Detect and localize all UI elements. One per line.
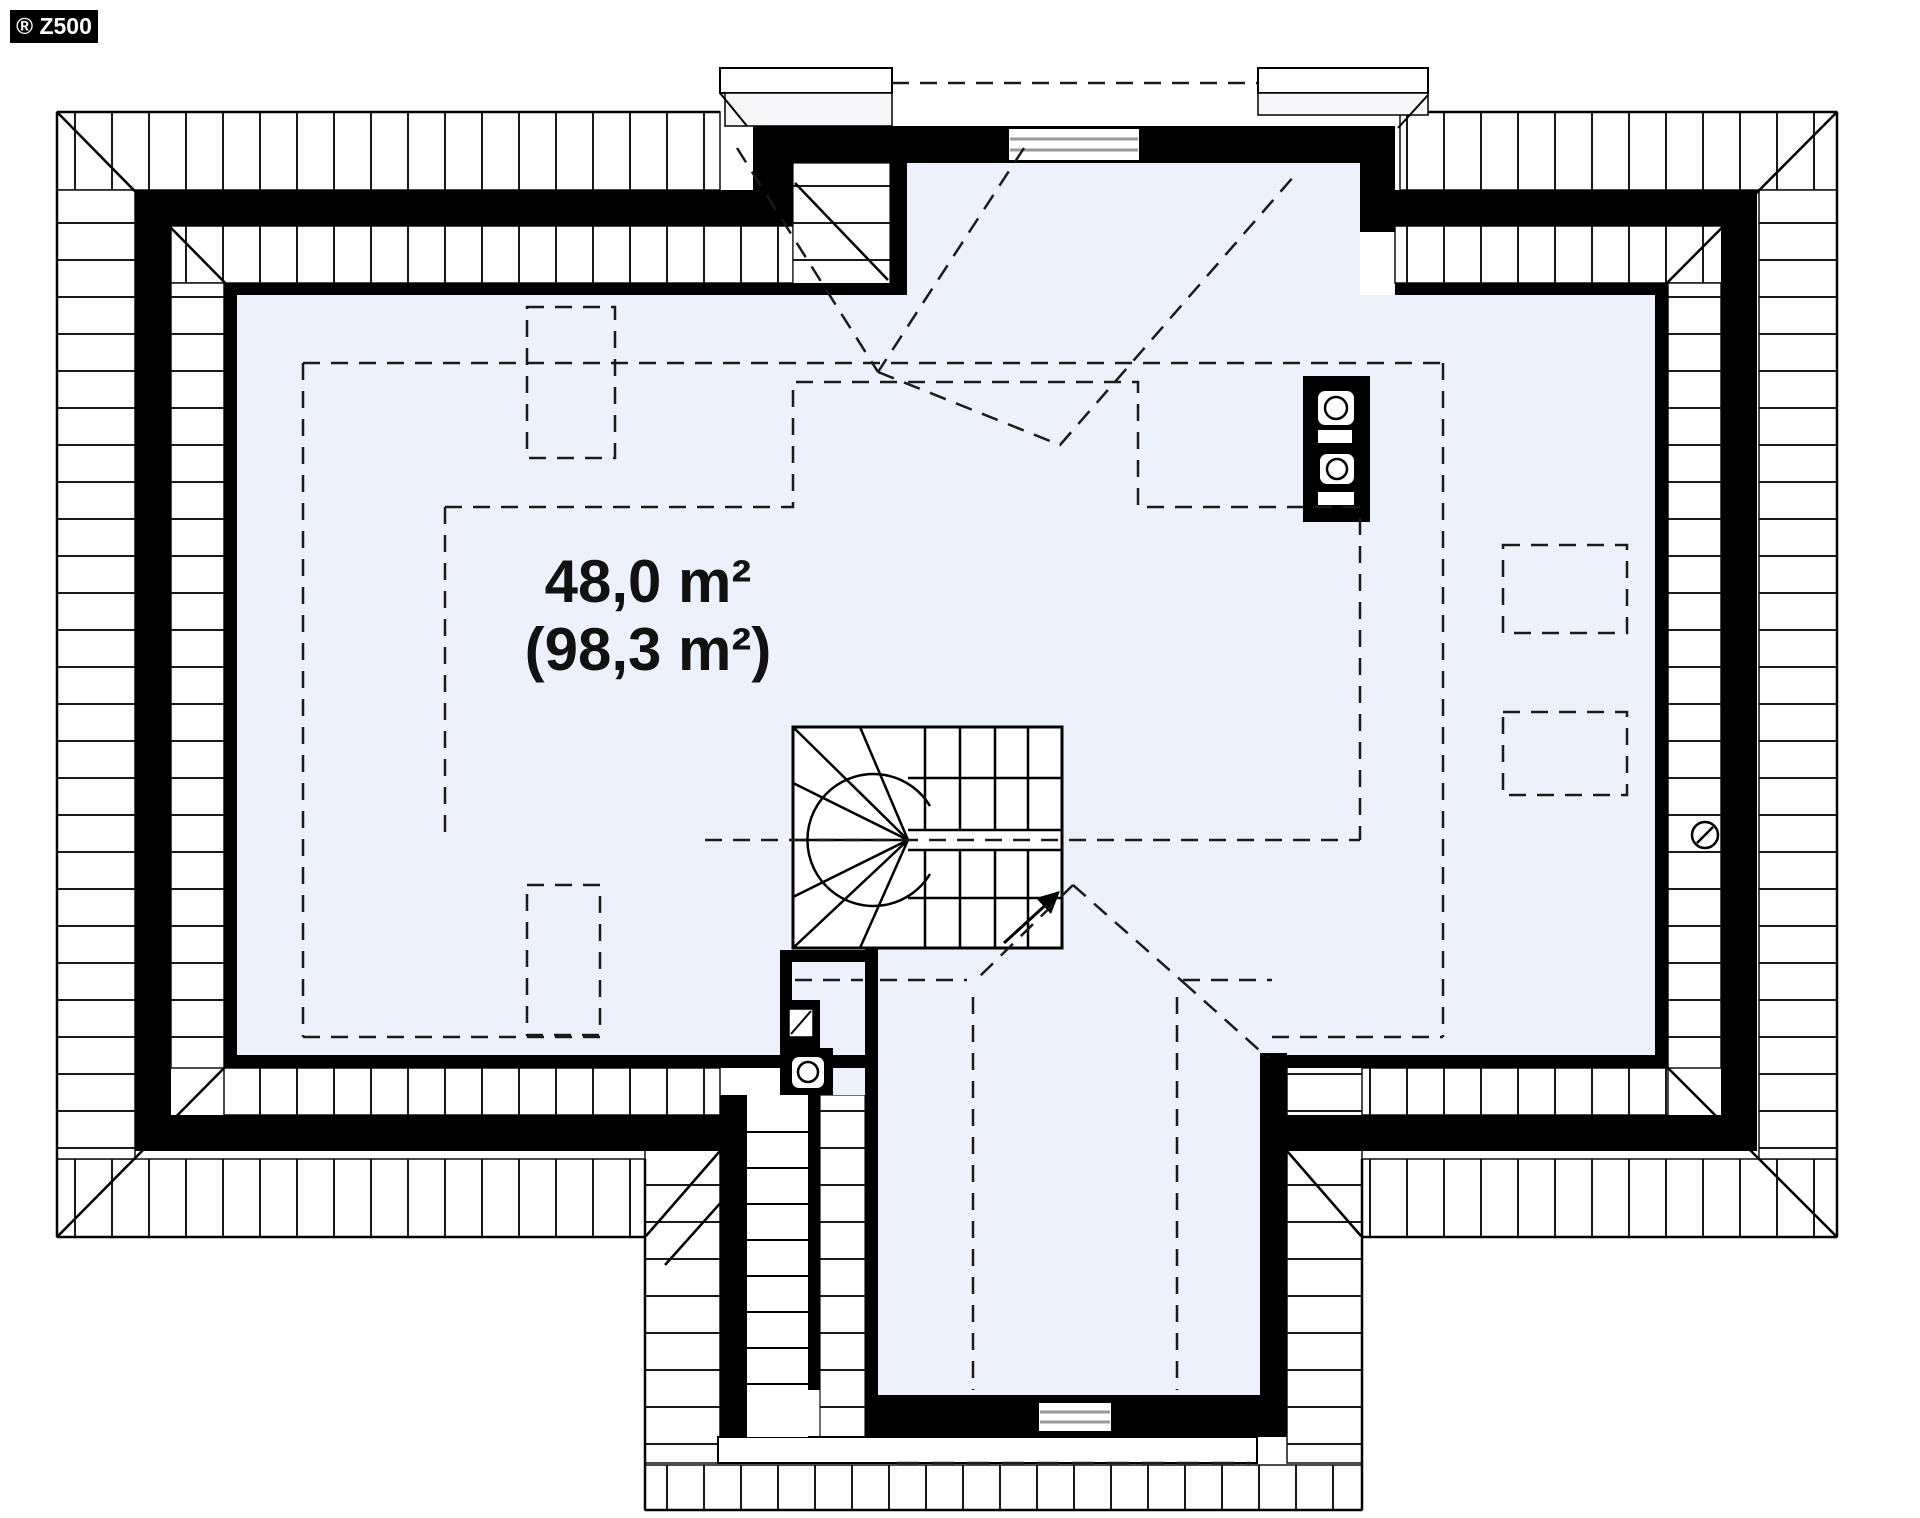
floor-plan-page: 48,0 m² (98,3 m²) ® Z500 — [0, 0, 1920, 1518]
staircase — [793, 727, 1062, 948]
entrance-porch — [718, 1437, 1257, 1463]
z500-logo-text: ® Z500 — [16, 13, 92, 39]
area-usable: 48,0 m² — [545, 548, 752, 615]
window-bottom-wing — [1038, 1402, 1112, 1432]
top-dormer-roof — [720, 68, 1428, 128]
chimney-flues-main — [1303, 376, 1370, 522]
floor-plan-drawing: 48,0 m² (98,3 m²) ® Z500 — [0, 0, 1920, 1518]
area-total: (98,3 m²) — [525, 616, 772, 683]
lower-stair-flight — [747, 1095, 808, 1437]
drain-vent-circle — [1692, 822, 1718, 848]
window-top-dormer — [1008, 128, 1140, 161]
area-label: 48,0 m² (98,3 m²) — [525, 548, 772, 683]
z500-logo: ® Z500 — [10, 10, 98, 43]
